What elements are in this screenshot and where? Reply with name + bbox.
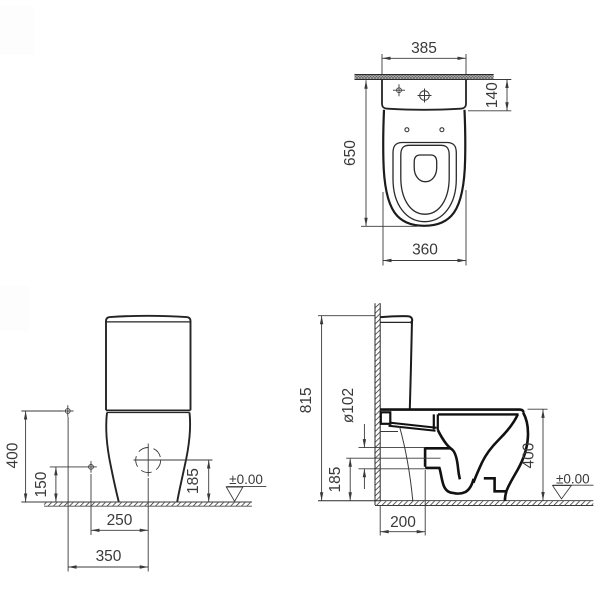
svg-text:ø102: ø102 bbox=[340, 388, 357, 423]
svg-text:360: 360 bbox=[412, 242, 438, 259]
svg-text:400: 400 bbox=[521, 442, 538, 468]
svg-text:250: 250 bbox=[107, 512, 133, 529]
svg-text:185: 185 bbox=[185, 468, 202, 494]
svg-text:185: 185 bbox=[327, 467, 344, 493]
svg-text:±0.00: ±0.00 bbox=[556, 471, 590, 486]
svg-text:400: 400 bbox=[5, 442, 22, 468]
svg-text:385: 385 bbox=[411, 40, 437, 57]
svg-text:140: 140 bbox=[484, 82, 501, 108]
svg-text:350: 350 bbox=[96, 548, 122, 565]
svg-text:650: 650 bbox=[342, 140, 359, 166]
svg-text:150: 150 bbox=[33, 471, 50, 497]
svg-text:200: 200 bbox=[390, 514, 416, 531]
svg-text:815: 815 bbox=[298, 387, 315, 413]
svg-text:±0.00: ±0.00 bbox=[229, 472, 263, 487]
